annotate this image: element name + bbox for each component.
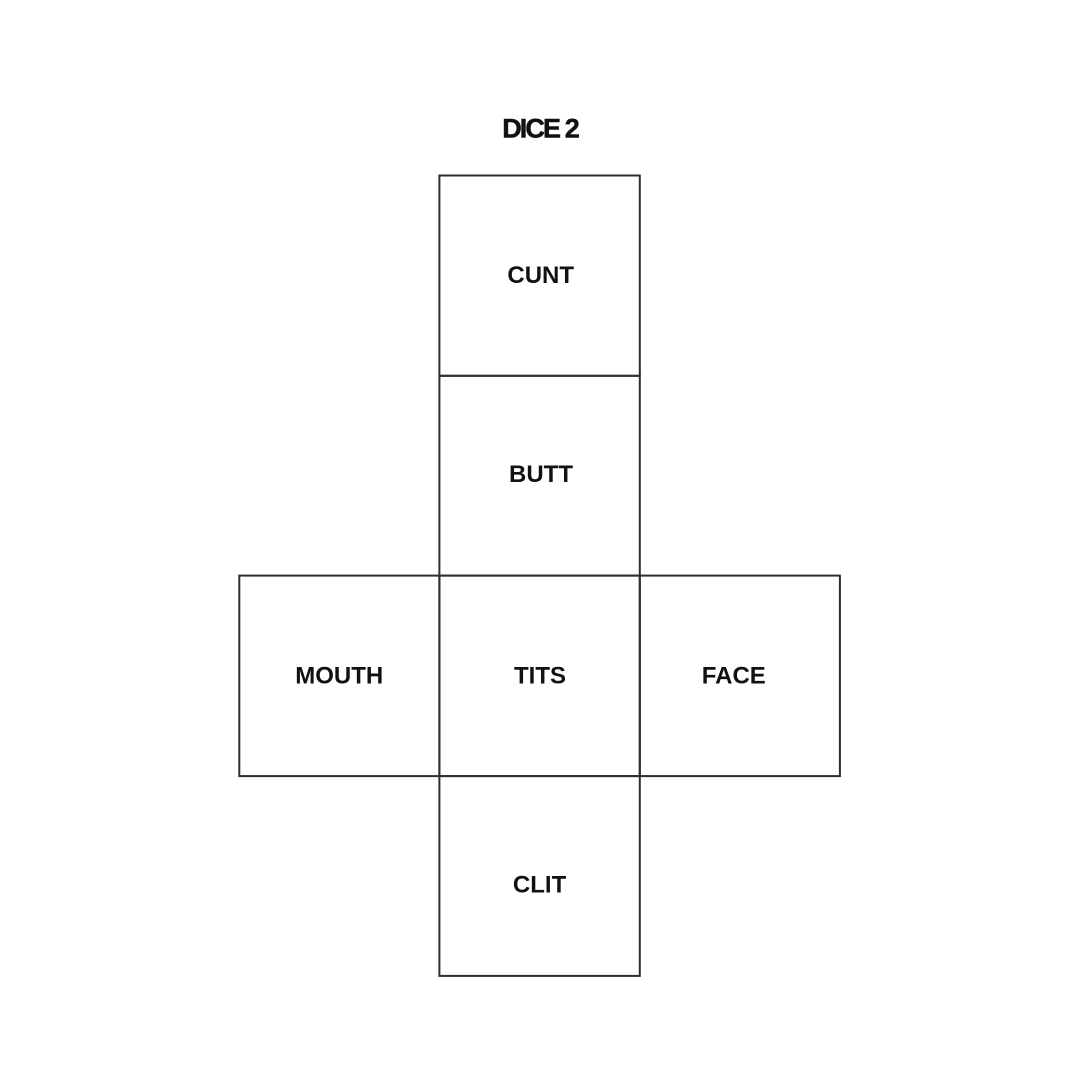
svg-text:FACE: FACE: [702, 662, 766, 689]
svg-text:CLIT: CLIT: [513, 872, 567, 899]
svg-text:BUTT: BUTT: [509, 461, 573, 488]
svg-text:CUNT: CUNT: [507, 262, 574, 289]
svg-text:DICE 2: DICE 2: [502, 114, 579, 144]
svg-text:MOUTH: MOUTH: [295, 662, 383, 689]
svg-text:TITS: TITS: [514, 662, 566, 689]
